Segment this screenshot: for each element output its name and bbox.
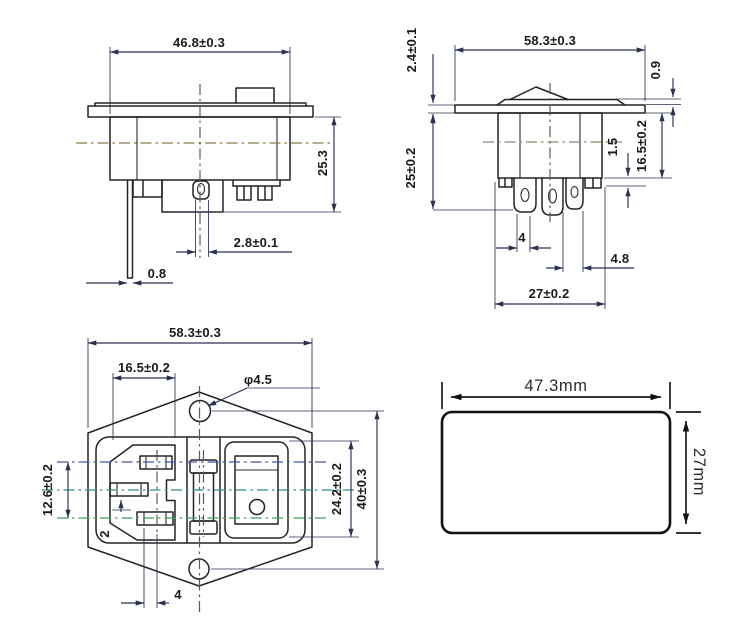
side-plain-dimensions: 46.8±0.3 25.3 2.8±0.1 0.8 xyxy=(86,35,341,283)
side-switch-dimensions: 58.3±0.3 2.4±0.1 25±0.2 0.9 16.5±0.2 1.5… xyxy=(403,28,681,309)
dim-pin-width: 2.8±0.1 xyxy=(234,235,279,250)
front-socket xyxy=(110,445,175,540)
view-front: 58.3±0.3 16.5±0.2 φ4.5 12.6±0.2 2 24.2±0… xyxy=(40,325,384,616)
dim-lug-width: 4.8 xyxy=(611,251,630,266)
dim-width: 46.8±0.3 xyxy=(173,35,225,50)
solder-lug xyxy=(566,178,583,209)
rocker-actuator xyxy=(510,87,568,100)
dim-pin-group-height: 12.6±0.2 xyxy=(40,464,55,516)
dim-switch-aperture-height: 24.2±0.2 xyxy=(329,463,344,515)
front-centerlines xyxy=(42,386,358,616)
dim-cutout-height: 27mm xyxy=(690,448,708,496)
dim-body-depth: 16.5±0.2 xyxy=(634,120,649,172)
cutout-rect xyxy=(442,412,670,533)
technical-drawing: 46.8±0.3 25.3 2.8±0.1 0.8 xyxy=(0,0,756,637)
view-side-switch: 58.3±0.3 2.4±0.1 25±0.2 0.9 16.5±0.2 1.5… xyxy=(403,28,681,309)
body-side xyxy=(498,113,602,178)
side-plain-centerlines xyxy=(76,84,332,258)
top-boss xyxy=(236,88,274,103)
dim-pin-span: 27±0.2 xyxy=(529,286,570,301)
dim-cutout-width: 47.3mm xyxy=(524,377,587,395)
long-pin xyxy=(128,180,133,278)
technical-drawing-page: 46.8±0.3 25.3 2.8±0.1 0.8 xyxy=(0,0,756,637)
front-dimensions: 58.3±0.3 16.5±0.2 φ4.5 12.6±0.2 2 24.2±0… xyxy=(40,325,384,608)
dim-bezel-height: 0.9 xyxy=(648,61,663,80)
dim-depth: 25±0.2 xyxy=(403,148,418,189)
dim-pin-offset: 2 xyxy=(97,530,112,537)
solder-lug xyxy=(514,178,536,212)
dim-socket-width: 16.5±0.2 xyxy=(118,360,170,375)
switch-bezel xyxy=(497,100,625,106)
dim-pin-pitch: 4 xyxy=(174,587,182,602)
rocker-dot xyxy=(250,500,265,515)
dim-depth: 25.3 xyxy=(315,150,330,176)
dim-pin-thickness: 0.8 xyxy=(148,266,167,281)
dim-pin-pitch: 4 xyxy=(518,230,526,245)
dim-width: 58.3±0.3 xyxy=(524,33,576,48)
view-panel-cutout: 47.3mm 27mm xyxy=(442,377,708,533)
dim-width: 58.3±0.3 xyxy=(169,325,221,340)
dim-hole-diameter: φ4.5 xyxy=(244,372,272,387)
view-side-plain: 46.8±0.3 25.3 2.8±0.1 0.8 xyxy=(76,35,341,283)
dim-tab-step: 1.5 xyxy=(605,138,620,157)
solder-lug xyxy=(542,178,563,215)
side-plain-pins xyxy=(128,180,281,278)
side-switch-centerlines xyxy=(483,83,622,222)
dim-hole-pitch: 40±0.3 xyxy=(354,469,369,510)
dim-flange-thickness: 2.4±0.1 xyxy=(404,28,419,73)
